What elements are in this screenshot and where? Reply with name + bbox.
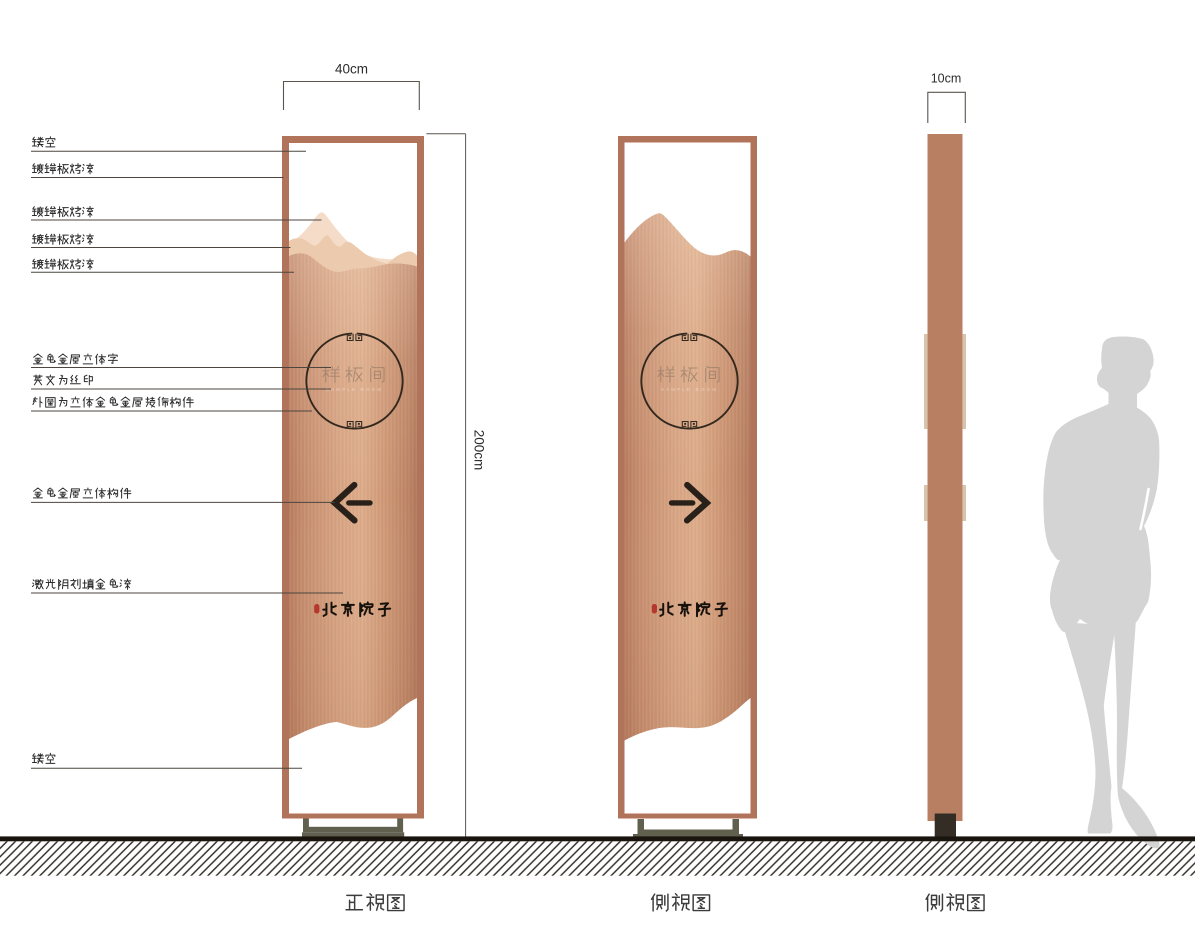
svg-text:10cm: 10cm xyxy=(931,72,962,86)
svg-text:200cm: 200cm xyxy=(472,430,487,471)
svg-text:SAMPLE ROOM: SAMPLE ROOM xyxy=(326,387,383,392)
svg-text:SAMPLE ROOM: SAMPLE ROOM xyxy=(661,387,718,392)
svg-text:40cm: 40cm xyxy=(335,62,368,77)
